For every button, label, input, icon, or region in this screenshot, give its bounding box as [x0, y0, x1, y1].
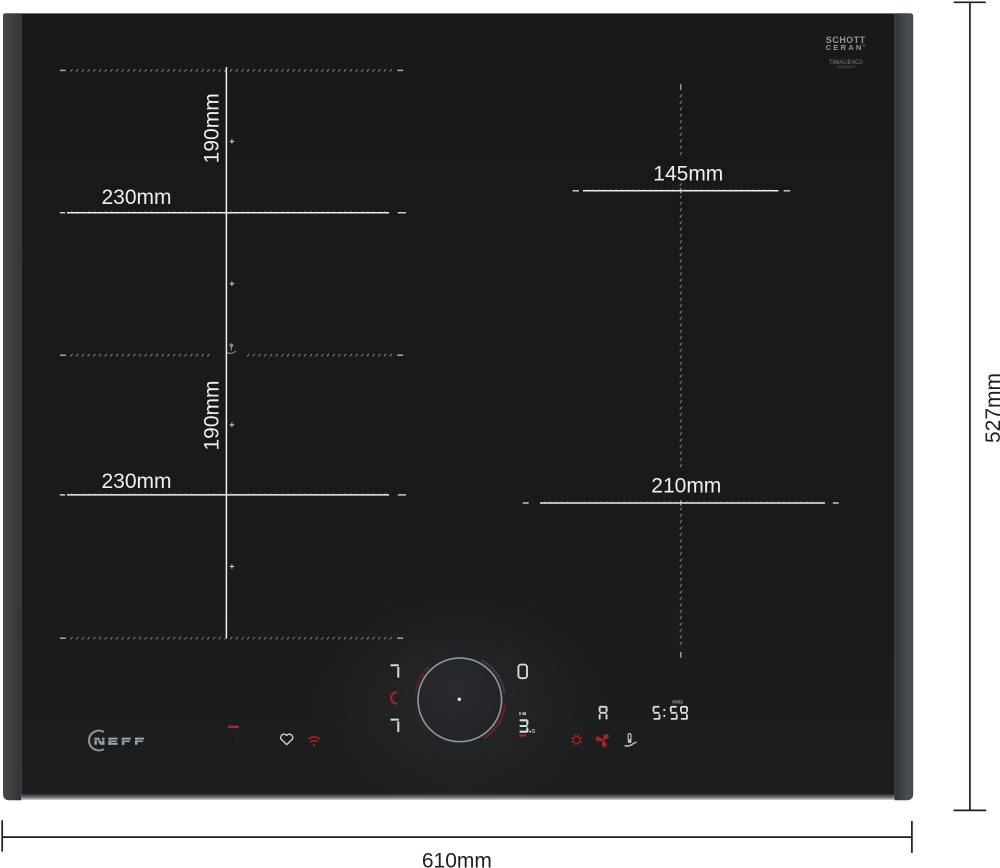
svg-text:527mm: 527mm	[982, 373, 1000, 443]
svg-text:230mm: 230mm	[102, 186, 172, 209]
svg-text:CERAN: CERAN	[826, 43, 864, 52]
svg-text:190mm: 190mm	[200, 93, 223, 163]
svg-text:mins: mins	[672, 700, 683, 706]
svg-text:9001155627: 9001155627	[837, 65, 856, 69]
svg-text:®: ®	[863, 44, 866, 48]
svg-text:190mm: 190mm	[200, 380, 223, 450]
svg-text:s: s	[532, 728, 536, 735]
svg-text:610mm: 610mm	[422, 849, 492, 868]
svg-text:145mm: 145mm	[653, 163, 723, 186]
svg-text:230mm: 230mm	[102, 470, 172, 493]
svg-text:210mm: 210mm	[651, 475, 721, 498]
